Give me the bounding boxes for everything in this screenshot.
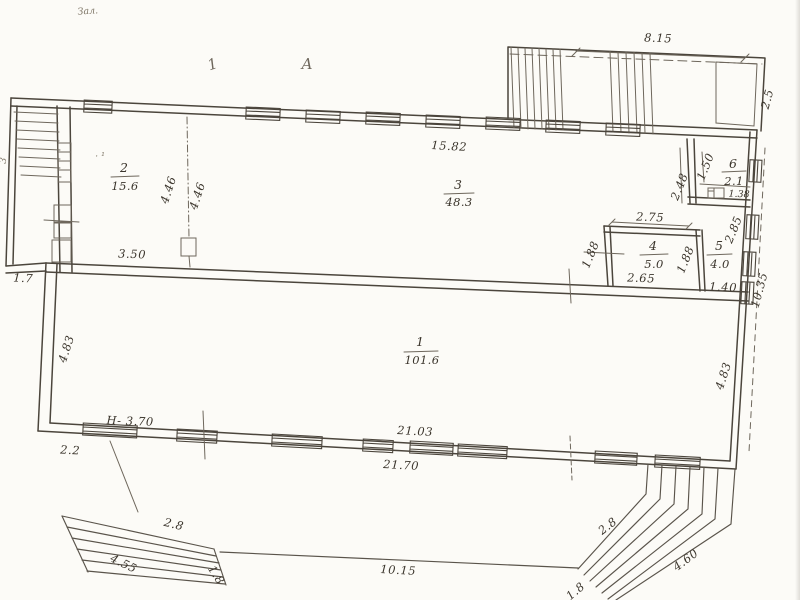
room-2-area: 15.6 xyxy=(111,179,138,193)
room-4-number: 4 xyxy=(648,238,657,253)
room-2-label: 2 15.6 xyxy=(111,160,139,193)
scanned-floor-plan-page: 1 101.6 2 15.6 3 48.3 4 5.0 5 4.0 6 2.1 … xyxy=(0,0,800,600)
dim-top-wall: 15.82 xyxy=(431,138,468,154)
dim-room2-width: 3.50 xyxy=(118,247,146,262)
dim-room4-left: 1.88 xyxy=(579,239,602,270)
dim-room1-left: 4.83 xyxy=(55,333,77,365)
dim-stair-right-edge: 1.8 xyxy=(563,579,587,600)
dim-front: 10.15 xyxy=(380,562,417,578)
room-2-number: 2 xyxy=(119,160,128,175)
dim-room4-bottom: 2.65 xyxy=(626,270,655,285)
room-3-number: 3 xyxy=(454,177,462,192)
top-wall-windows xyxy=(84,100,640,136)
dim-room4-right: 1.88 xyxy=(674,244,697,275)
room-6-area: 2.1 xyxy=(723,174,744,188)
room-4-area: 5.0 xyxy=(644,257,664,271)
dim-stair-left-side: 4.55 xyxy=(107,551,139,576)
dim-corner-2-2: 2.2 xyxy=(59,442,81,457)
stray-mark: · ¹ xyxy=(95,151,105,162)
dim-stair-right-top: 2.8 xyxy=(595,514,620,538)
dim-stair-left-top: 2.8 xyxy=(162,515,186,534)
room-6-number: 6 xyxy=(729,156,737,171)
edge-mark: 3 xyxy=(0,157,9,165)
exterior-stair-left xyxy=(62,516,226,585)
room-1-number: 1 xyxy=(416,334,424,349)
dim-room1-right: 4.83 xyxy=(712,360,734,392)
dim-room5-height: 2.85 xyxy=(721,214,745,246)
room-3-label: 3 48.3 xyxy=(444,177,474,209)
dim-bottom-inner: 21.03 xyxy=(396,423,434,439)
dim-1-50: 1.50 xyxy=(694,151,717,182)
axis-mark-1: 1 xyxy=(205,54,220,74)
room-3-area: 48.3 xyxy=(444,195,472,209)
floor-plan-canvas: 1 101.6 2 15.6 3 48.3 4 5.0 5 4.0 6 2.1 … xyxy=(0,0,800,600)
interior-staircase xyxy=(14,112,79,262)
room-5-area: 4.0 xyxy=(709,257,730,271)
axis-mark-a: А xyxy=(300,55,312,73)
room-6-label: 6 2.1 xyxy=(722,156,746,188)
dim-room4-top: 2.75 xyxy=(635,209,664,224)
room-1-label: 1 101.6 xyxy=(404,334,439,367)
dim-bottom-outer: 21.70 xyxy=(382,457,420,473)
dim-wc-width: 1.38 xyxy=(728,189,750,201)
corner-note: Зал. xyxy=(77,5,98,17)
dim-2-48: 2.48 xyxy=(667,171,691,203)
room-1-area: 101.6 xyxy=(405,353,440,367)
room-4-label: 4 5.0 xyxy=(640,238,668,271)
dim-vestibule: 1.7 xyxy=(13,270,34,285)
dim-partition-a: 4.46 xyxy=(157,174,179,206)
dim-porch-top: 8.15 xyxy=(644,31,672,46)
note-ceiling-height: H- 3.70 xyxy=(105,413,154,429)
dim-room5-width: 1.40 xyxy=(709,280,737,295)
dim-partition-b: 4.46 xyxy=(186,180,208,212)
toilet-icon xyxy=(708,188,724,198)
dim-porch-side: 2.5 xyxy=(758,87,777,111)
